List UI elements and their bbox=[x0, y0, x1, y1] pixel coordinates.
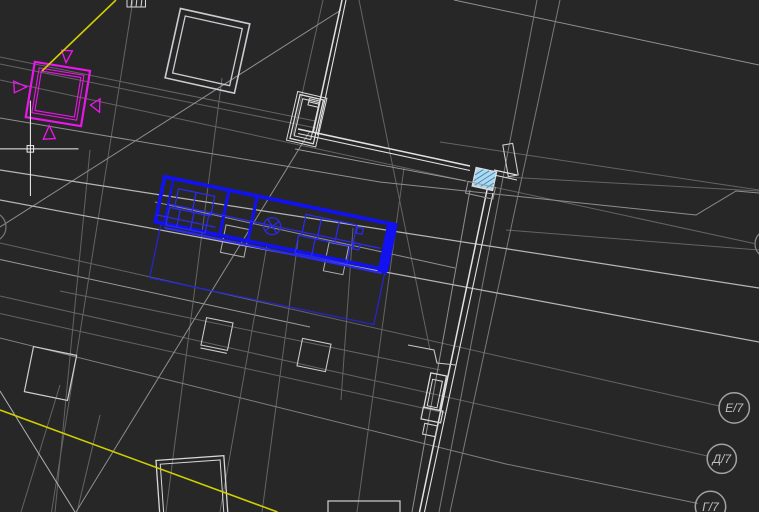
svg-text:Е/7: Е/7 bbox=[725, 401, 744, 415]
svg-text:Г/7: Г/7 bbox=[702, 500, 720, 512]
svg-text:Д/7: Д/7 bbox=[711, 452, 733, 466]
